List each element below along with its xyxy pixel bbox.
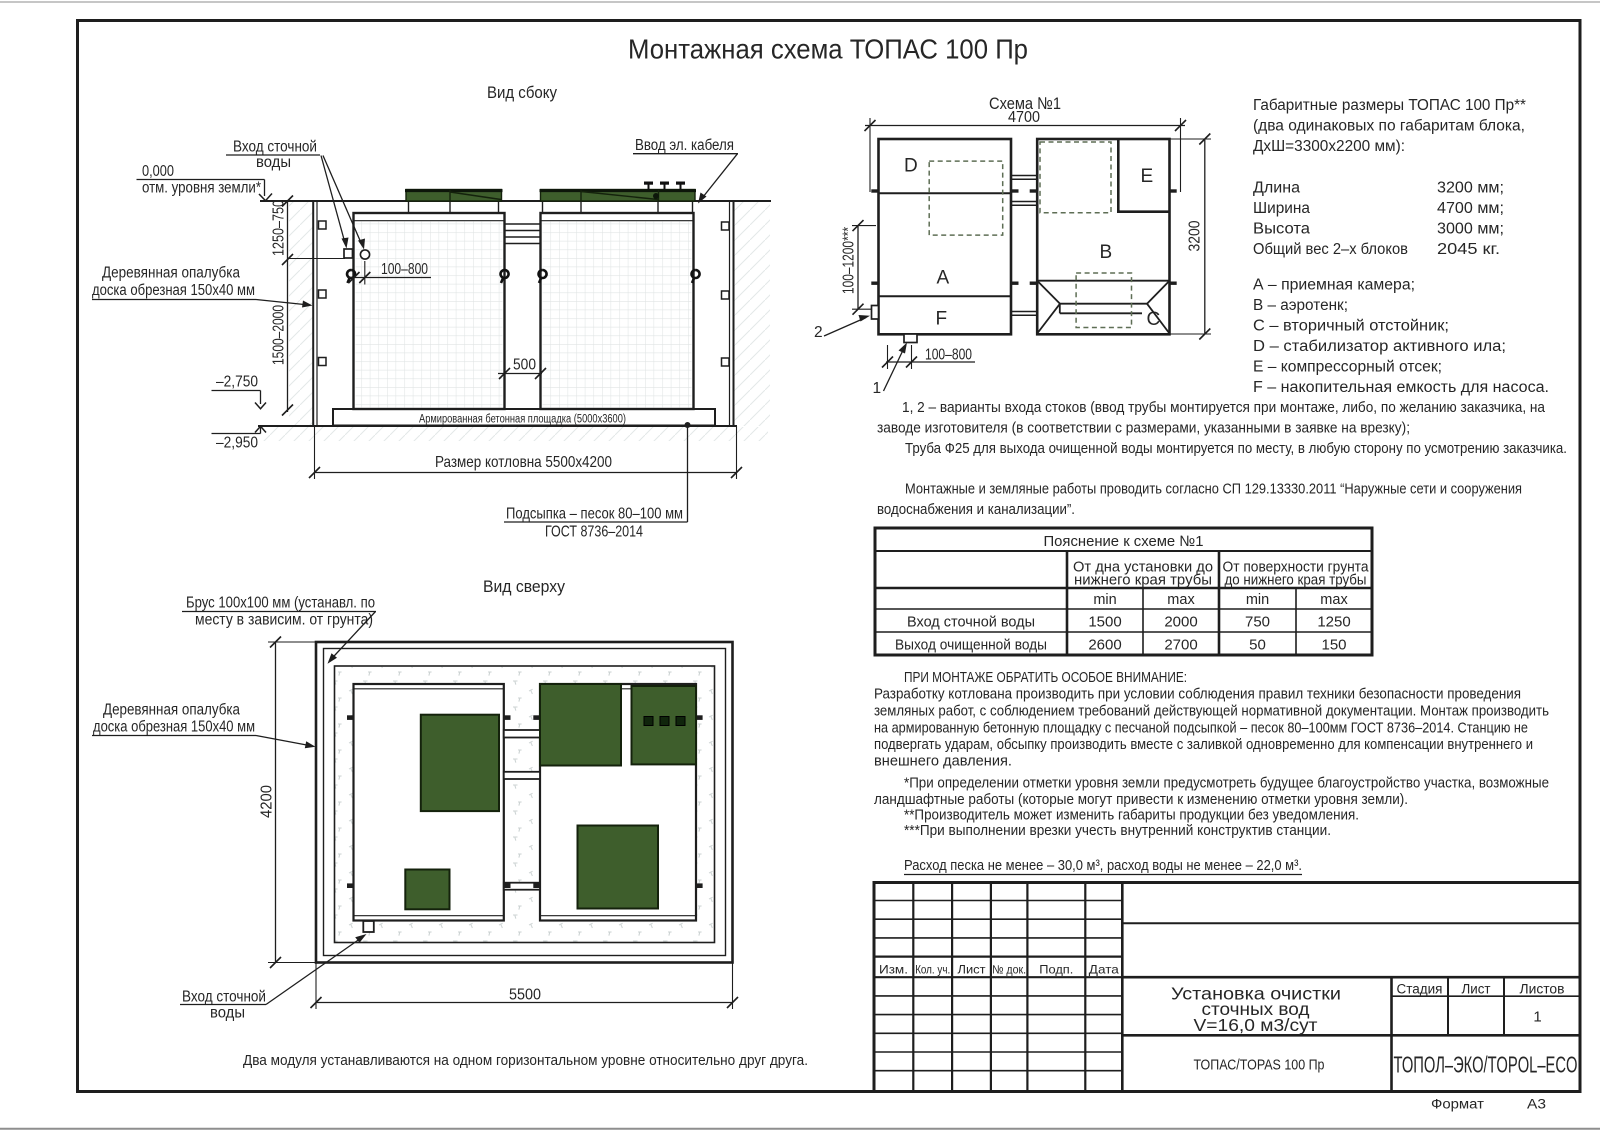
svg-text:3200: 3200 bbox=[1187, 220, 1204, 251]
svg-text:подвергать ударам, обсыпку про: подвергать ударам, обсыпку производить в… bbox=[874, 736, 1533, 753]
svg-text:В – аэротенк;: В – аэротенк; bbox=[1253, 297, 1348, 314]
svg-text:Дата: Дата bbox=[1089, 963, 1119, 977]
svg-text:(два одинаковых по габаритам б: (два одинаковых по габаритам блока, bbox=[1253, 118, 1525, 135]
svg-text:–2,950: –2,950 bbox=[216, 435, 258, 452]
svg-text:1250–750: 1250–750 bbox=[271, 200, 288, 256]
svg-text:ТОПАС/TOPAS 100 Пр: ТОПАС/TOPAS 100 Пр bbox=[1194, 1058, 1325, 1074]
svg-text:1500: 1500 bbox=[1088, 614, 1121, 631]
svg-text:2000: 2000 bbox=[1164, 614, 1197, 631]
svg-text:воды: воды bbox=[256, 154, 291, 171]
svg-text:Кол. уч.: Кол. уч. bbox=[915, 963, 950, 977]
svg-text:D: D bbox=[904, 156, 918, 177]
svg-text:min: min bbox=[1093, 592, 1116, 608]
svg-text:A: A bbox=[937, 268, 950, 289]
svg-text:Два модуля устанавливаются на: Два модуля устанавливаются на одном гори… bbox=[243, 1052, 808, 1069]
svg-text:Разработку котлована производи: Разработку котлована производить при усл… bbox=[874, 686, 1521, 703]
svg-text:Общий вес 2–х блоков: Общий вес 2–х блоков bbox=[1253, 241, 1408, 258]
svg-text:ДхШ=3300х2200 мм):: ДхШ=3300х2200 мм): bbox=[1253, 138, 1405, 155]
svg-text:F: F bbox=[936, 309, 948, 330]
svg-text:Монтажные и земляные работы пр: Монтажные и земляные работы проводить со… bbox=[905, 481, 1522, 498]
svg-text:доска обрезная 150х40 мм: доска обрезная 150х40 мм bbox=[93, 719, 255, 736]
svg-text:F – накопительная емкость для: F – накопительная емкость для насоса. bbox=[1253, 379, 1549, 396]
svg-text:1: 1 bbox=[873, 380, 882, 397]
svg-text:D – стабилизатор активного ила: D – стабилизатор активного ила; bbox=[1253, 338, 1506, 355]
svg-text:нижнего края трубы: нижнего края трубы bbox=[1074, 573, 1212, 589]
svg-text:Деревянная опалубка: Деревянная опалубка bbox=[102, 265, 240, 282]
svg-text:Лист: Лист bbox=[958, 963, 987, 977]
svg-text:**Производитель может изменить: **Производитель может изменить габариты … bbox=[904, 807, 1359, 824]
svg-text:№ док.: № док. bbox=[992, 963, 1026, 977]
svg-text:отм. уровня земли*: отм. уровня земли* bbox=[142, 180, 261, 197]
svg-text:Ширина: Ширина bbox=[1253, 200, 1310, 217]
svg-text:заводе изготовителя (в соответ: заводе изготовителя (в соответствии с ра… bbox=[877, 420, 1410, 437]
svg-text:150: 150 bbox=[1321, 637, 1346, 654]
svg-text:1, 2 – варианты входа стоков: 1, 2 – варианты входа стоков (ввод трубы… bbox=[902, 399, 1546, 416]
svg-text:0,000: 0,000 bbox=[142, 163, 174, 180]
svg-text:ПРИ МОНТАЖЕ ОБРАТИТЬ ОСОБОЕ ВН: ПРИ МОНТАЖЕ ОБРАТИТЬ ОСОБОЕ ВНИМАНИЕ: bbox=[904, 669, 1187, 686]
svg-text:Подсыпка – песок 80–100 мм: Подсыпка – песок 80–100 мм bbox=[506, 506, 683, 523]
svg-text:2600: 2600 bbox=[1088, 637, 1121, 654]
svg-text:4700: 4700 bbox=[1008, 109, 1040, 126]
svg-text:750: 750 bbox=[1245, 614, 1270, 631]
svg-text:доска обрезная 150х40 мм: доска обрезная 150х40 мм bbox=[92, 282, 255, 299]
svg-text:2: 2 bbox=[814, 324, 823, 341]
svg-text:Подп.: Подп. bbox=[1039, 963, 1073, 977]
svg-text:ГОСТ 8736–2014: ГОСТ 8736–2014 bbox=[545, 524, 643, 541]
svg-text:Армированная бетонная площадка: Армированная бетонная площадка (5000х360… bbox=[419, 414, 626, 426]
svg-text:Вид сверху: Вид сверху bbox=[483, 577, 565, 596]
svg-text:500: 500 bbox=[513, 357, 536, 374]
svg-text:внешнего давления.: внешнего давления. bbox=[874, 753, 1012, 770]
svg-text:B: B bbox=[1100, 242, 1113, 263]
svg-text:на армированную бетонную площа: на армированную бетонную площадку с песч… bbox=[874, 720, 1528, 737]
svg-text:Выход очищенной воды: Выход очищенной воды bbox=[895, 637, 1047, 654]
svg-text:***При выполнении врезки учест: ***При выполнении врезки учесть внутренн… bbox=[904, 822, 1331, 839]
svg-text:4200: 4200 bbox=[259, 785, 276, 818]
svg-text:*При определении отметки уровн: *При определении отметки уровня земли пр… bbox=[904, 775, 1549, 792]
svg-text:Стадия: Стадия bbox=[1397, 982, 1443, 997]
svg-text:1250: 1250 bbox=[1317, 614, 1350, 631]
svg-text:1: 1 bbox=[1533, 1009, 1541, 1026]
svg-text:Вход сточной: Вход сточной bbox=[182, 989, 266, 1006]
svg-text:Высота: Высота bbox=[1253, 221, 1310, 238]
svg-text:Длина: Длина bbox=[1253, 180, 1300, 197]
svg-text:100–800: 100–800 bbox=[925, 347, 972, 364]
svg-text:Габаритные размеры ТОПАС 100 П: Габаритные размеры ТОПАС 100 Пр** bbox=[1253, 97, 1526, 114]
svg-text:земляных работ, с соблюдением: земляных работ, с соблюдением требований… bbox=[874, 703, 1549, 720]
svg-text:3200 мм;: 3200 мм; bbox=[1437, 180, 1504, 197]
svg-text:Брус 100х100 мм (устанавл. по: Брус 100х100 мм (устанавл. по bbox=[186, 595, 375, 612]
svg-text:Деревянная опалубка: Деревянная опалубка bbox=[103, 702, 240, 719]
svg-text:5500: 5500 bbox=[509, 987, 541, 1004]
svg-text:Труба Ф25 для выхода очищенной: Труба Ф25 для выхода очищенной воды монт… bbox=[905, 440, 1567, 457]
svg-text:Изм.: Изм. bbox=[879, 963, 908, 977]
svg-text:А – приемная камера;: А – приемная камера; bbox=[1253, 277, 1415, 294]
svg-text:до нижнего края трубы: до нижнего края трубы bbox=[1225, 573, 1367, 589]
svg-text:min: min bbox=[1246, 592, 1269, 608]
svg-text:Листов: Листов bbox=[1520, 982, 1565, 997]
svg-text:2045 кг.: 2045 кг. bbox=[1437, 241, 1500, 258]
svg-text:V=16,0 м3/сут: V=16,0 м3/сут bbox=[1194, 1015, 1318, 1035]
svg-text:Лист: Лист bbox=[1462, 982, 1491, 997]
svg-text:Ввод эл. кабеля: Ввод эл. кабеля bbox=[635, 137, 734, 154]
svg-text:3000 мм;: 3000 мм; bbox=[1437, 221, 1504, 238]
svg-text:С – вторичный отстойник;: С – вторичный отстойник; bbox=[1253, 318, 1449, 335]
svg-text:Размер котловна 5500х4200: Размер котловна 5500х4200 bbox=[435, 454, 612, 471]
svg-text:2700: 2700 bbox=[1164, 637, 1197, 654]
svg-text:E: E bbox=[1141, 166, 1154, 187]
svg-text:Пояснение к схеме №1: Пояснение к схеме №1 bbox=[1044, 533, 1204, 550]
svg-text:100–800: 100–800 bbox=[381, 261, 428, 278]
svg-text:водоснабжения и канализации”.: водоснабжения и канализации”. bbox=[877, 501, 1075, 518]
svg-text:max: max bbox=[1167, 592, 1195, 608]
svg-text:Вход сточной: Вход сточной bbox=[233, 139, 317, 156]
svg-text:Формат: Формат bbox=[1431, 1097, 1484, 1112]
svg-text:E – компрессорный отсек;: E – компрессорный отсек; bbox=[1253, 359, 1442, 376]
svg-text:–2,750: –2,750 bbox=[216, 374, 258, 391]
svg-text:Расход песка не менее – 30,0 м: Расход песка не менее – 30,0 м³, расход … bbox=[904, 857, 1302, 874]
svg-text:Вход сточной воды: Вход сточной воды bbox=[907, 614, 1035, 631]
svg-text:4700 мм;: 4700 мм; bbox=[1437, 200, 1504, 217]
svg-text:А3: А3 bbox=[1527, 1097, 1546, 1112]
svg-text:max: max bbox=[1320, 592, 1348, 608]
svg-text:ландшафтные работы (которые мо: ландшафтные работы (которые могут привес… bbox=[874, 791, 1408, 808]
svg-text:Вид сбоку: Вид сбоку bbox=[487, 83, 557, 102]
svg-text:1500–2000: 1500–2000 bbox=[271, 305, 288, 365]
svg-text:50: 50 bbox=[1249, 637, 1266, 654]
svg-text:ТОПОЛ–ЭКО/TOPOL–ECO: ТОПОЛ–ЭКО/TOPOL–ECO bbox=[1394, 1052, 1578, 1078]
svg-text:месту в зависим. от грунта): месту в зависим. от грунта) bbox=[195, 612, 373, 629]
svg-text:Монтажная схема ТОПАС 100 Пр: Монтажная схема ТОПАС 100 Пр bbox=[628, 34, 1028, 65]
svg-text:100–1200***: 100–1200*** bbox=[841, 227, 858, 294]
svg-text:воды: воды bbox=[210, 1005, 245, 1022]
